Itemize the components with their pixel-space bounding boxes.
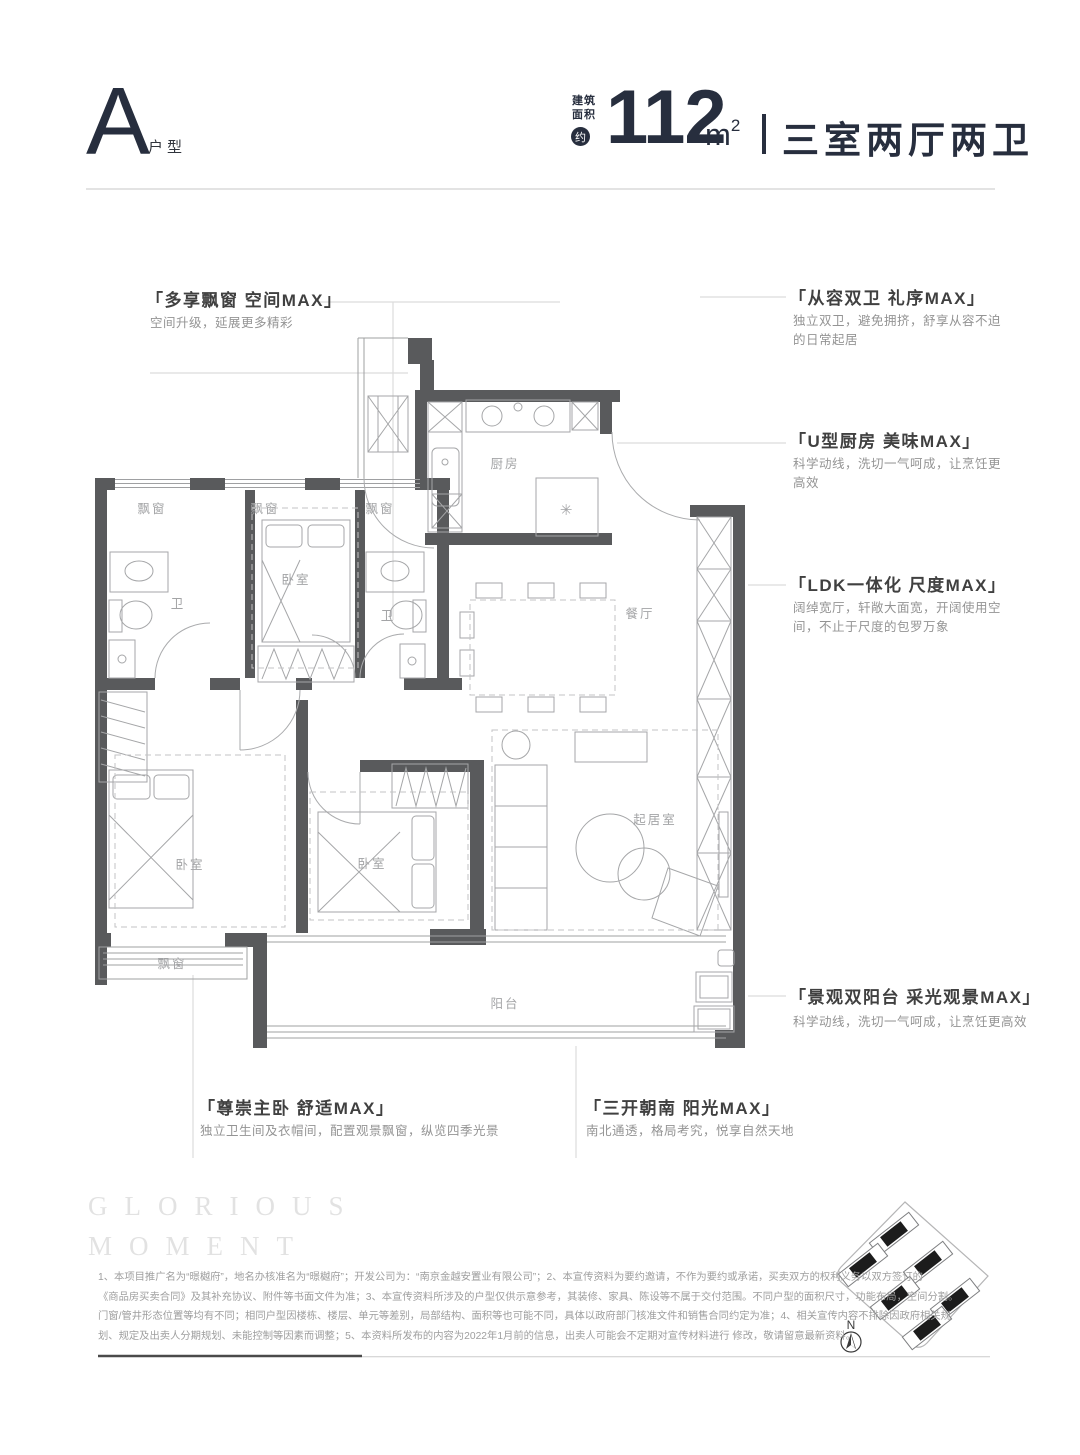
label-bath-1: 卫: [171, 597, 186, 611]
dining-set: [460, 583, 606, 712]
label-kitchen: 厨房: [490, 456, 519, 471]
area-unit-sup: 2: [731, 116, 740, 135]
label-balcony: 阳台: [490, 996, 519, 1011]
fridge-symbol: ✳: [560, 502, 575, 519]
label-bath-2: 卫: [381, 609, 396, 623]
annotation-kitchen-desc: 科学动线，洗切一气呵成，让烹饪更 高效: [793, 455, 1001, 493]
annotation-ldk-desc-line2: 间，不止于尺度的包罗万象: [793, 618, 1001, 637]
annotation-south-title: 「三开朝南 阳光MAX」: [584, 1094, 781, 1119]
disclaimer-line2: 《商品房买卖合同》及其补充协议、附件等书面文件为准；3、本宣传资料所涉及的户型仅…: [98, 1288, 998, 1308]
rooms-summary: 三室两厅两卫: [782, 110, 1034, 164]
annotation-balcony-title: 「景观双阳台 采光观景MAX」: [789, 983, 1041, 1008]
annotation-kitchen-desc-line1: 科学动线，洗切一气呵成，让烹饪更: [793, 455, 1001, 474]
bath-right: [366, 552, 426, 678]
cabinet-column: [697, 517, 731, 930]
annotation-south-desc: 南北通透，格局考究，悦享自然天地: [586, 1122, 794, 1141]
dashed-outlines: [115, 508, 718, 930]
area-unit-base: m: [705, 117, 731, 152]
bath-left: [109, 552, 168, 678]
annotation-master-title: 「尊崇主卧 舒适MAX」: [198, 1094, 395, 1119]
annotation-dual-bath-desc-line1: 独立双卫，避免拥挤，舒享从容不迫: [793, 312, 1001, 331]
plan-furniture: [99, 396, 734, 1032]
area-unit: m2: [705, 116, 740, 153]
unit-letter: A: [86, 74, 150, 170]
area-prefix-label: 建筑 面积: [572, 94, 596, 122]
approx-badge: 约: [571, 127, 590, 146]
annotation-ldk-desc: 阔绰宽厅，轩敞大面宽，开阔使用空 间，不止于尺度的包罗万象: [793, 599, 1001, 637]
annotation-bay-window-title: 「多享飘窗 空间MAX」: [146, 286, 343, 311]
balcony-appliances: [694, 950, 734, 1032]
label-living: 起居室: [633, 812, 677, 827]
label-bay-2: 飘窗: [250, 502, 279, 516]
annotation-kitchen-title: 「U型厨房 美味MAX」: [789, 427, 981, 452]
bedroom-north: [258, 520, 354, 682]
disclaimer-line3: 门窗/管井形态位置等均有不同；相同户型因楼栋、楼层、单元等差别，局部结构、面积等…: [98, 1307, 998, 1327]
annotation-kitchen-desc-line2: 高效: [793, 474, 1001, 493]
leader-lines: [150, 297, 786, 1158]
bedroom-second: [318, 764, 468, 912]
annotation-ldk-desc-line1: 阔绰宽厅，轩敞大面宽，开阔使用空: [793, 599, 1001, 618]
annotation-ldk-title: 「LDK一体化 尺度MAX」: [789, 571, 1006, 596]
annotation-dual-bath-desc: 独立双卫，避免拥挤，舒享从容不迫 的日常起居: [793, 312, 1001, 350]
watermark-line1: GLORIOUS: [88, 1186, 361, 1226]
label-bedroom-second: 卧室: [357, 856, 386, 871]
label-dining: 餐厅: [625, 606, 654, 621]
annotation-master-desc: 独立卫生间及衣帽间，配置观景飘窗，纵览四季光景: [200, 1122, 499, 1141]
area-prefix-line2: 面积: [572, 108, 596, 122]
label-bedroom-master: 卧室: [175, 857, 204, 872]
label-bay-4: 飘窗: [157, 957, 186, 971]
living-furniture: [495, 731, 728, 936]
label-bay-1: 飘窗: [137, 502, 166, 516]
annotation-bay-window-desc: 空间升级，延展更多精彩: [150, 314, 293, 333]
disclaimer-line1: 1、本项目推广名为“暻樾府”，地名办核准名为“暻樾府”；开发公司为：“南京金越安…: [98, 1268, 998, 1288]
shaft: [368, 396, 408, 452]
annotation-balcony-desc: 科学动线，洗切一气呵成，让烹饪更高效: [793, 1013, 1027, 1032]
unit-type-label: 户型: [148, 136, 186, 157]
area-prefix-line1: 建筑: [572, 94, 596, 108]
label-bay-3: 飘窗: [365, 502, 394, 516]
watermark-line2: MOMENT: [88, 1226, 361, 1266]
annotation-dual-bath-desc-line2: 的日常起居: [793, 331, 1001, 350]
bedroom-master: [99, 692, 193, 908]
header-divider-bar: [762, 114, 766, 154]
label-bedroom-north: 卧室: [281, 572, 310, 587]
disclaimer: 1、本项目推广名为“暻樾府”，地名办核准名为“暻樾府”；开发公司为：“南京金越安…: [98, 1268, 998, 1346]
disclaimer-line4: 划、规定及出卖人分期规划、未能控制等因素而调整；5、本资料所发布的内容为2022…: [98, 1327, 998, 1347]
annotation-dual-bath-title: 「从容双卫 礼序MAX」: [789, 284, 986, 309]
watermark: GLORIOUS MOMENT: [88, 1186, 361, 1266]
